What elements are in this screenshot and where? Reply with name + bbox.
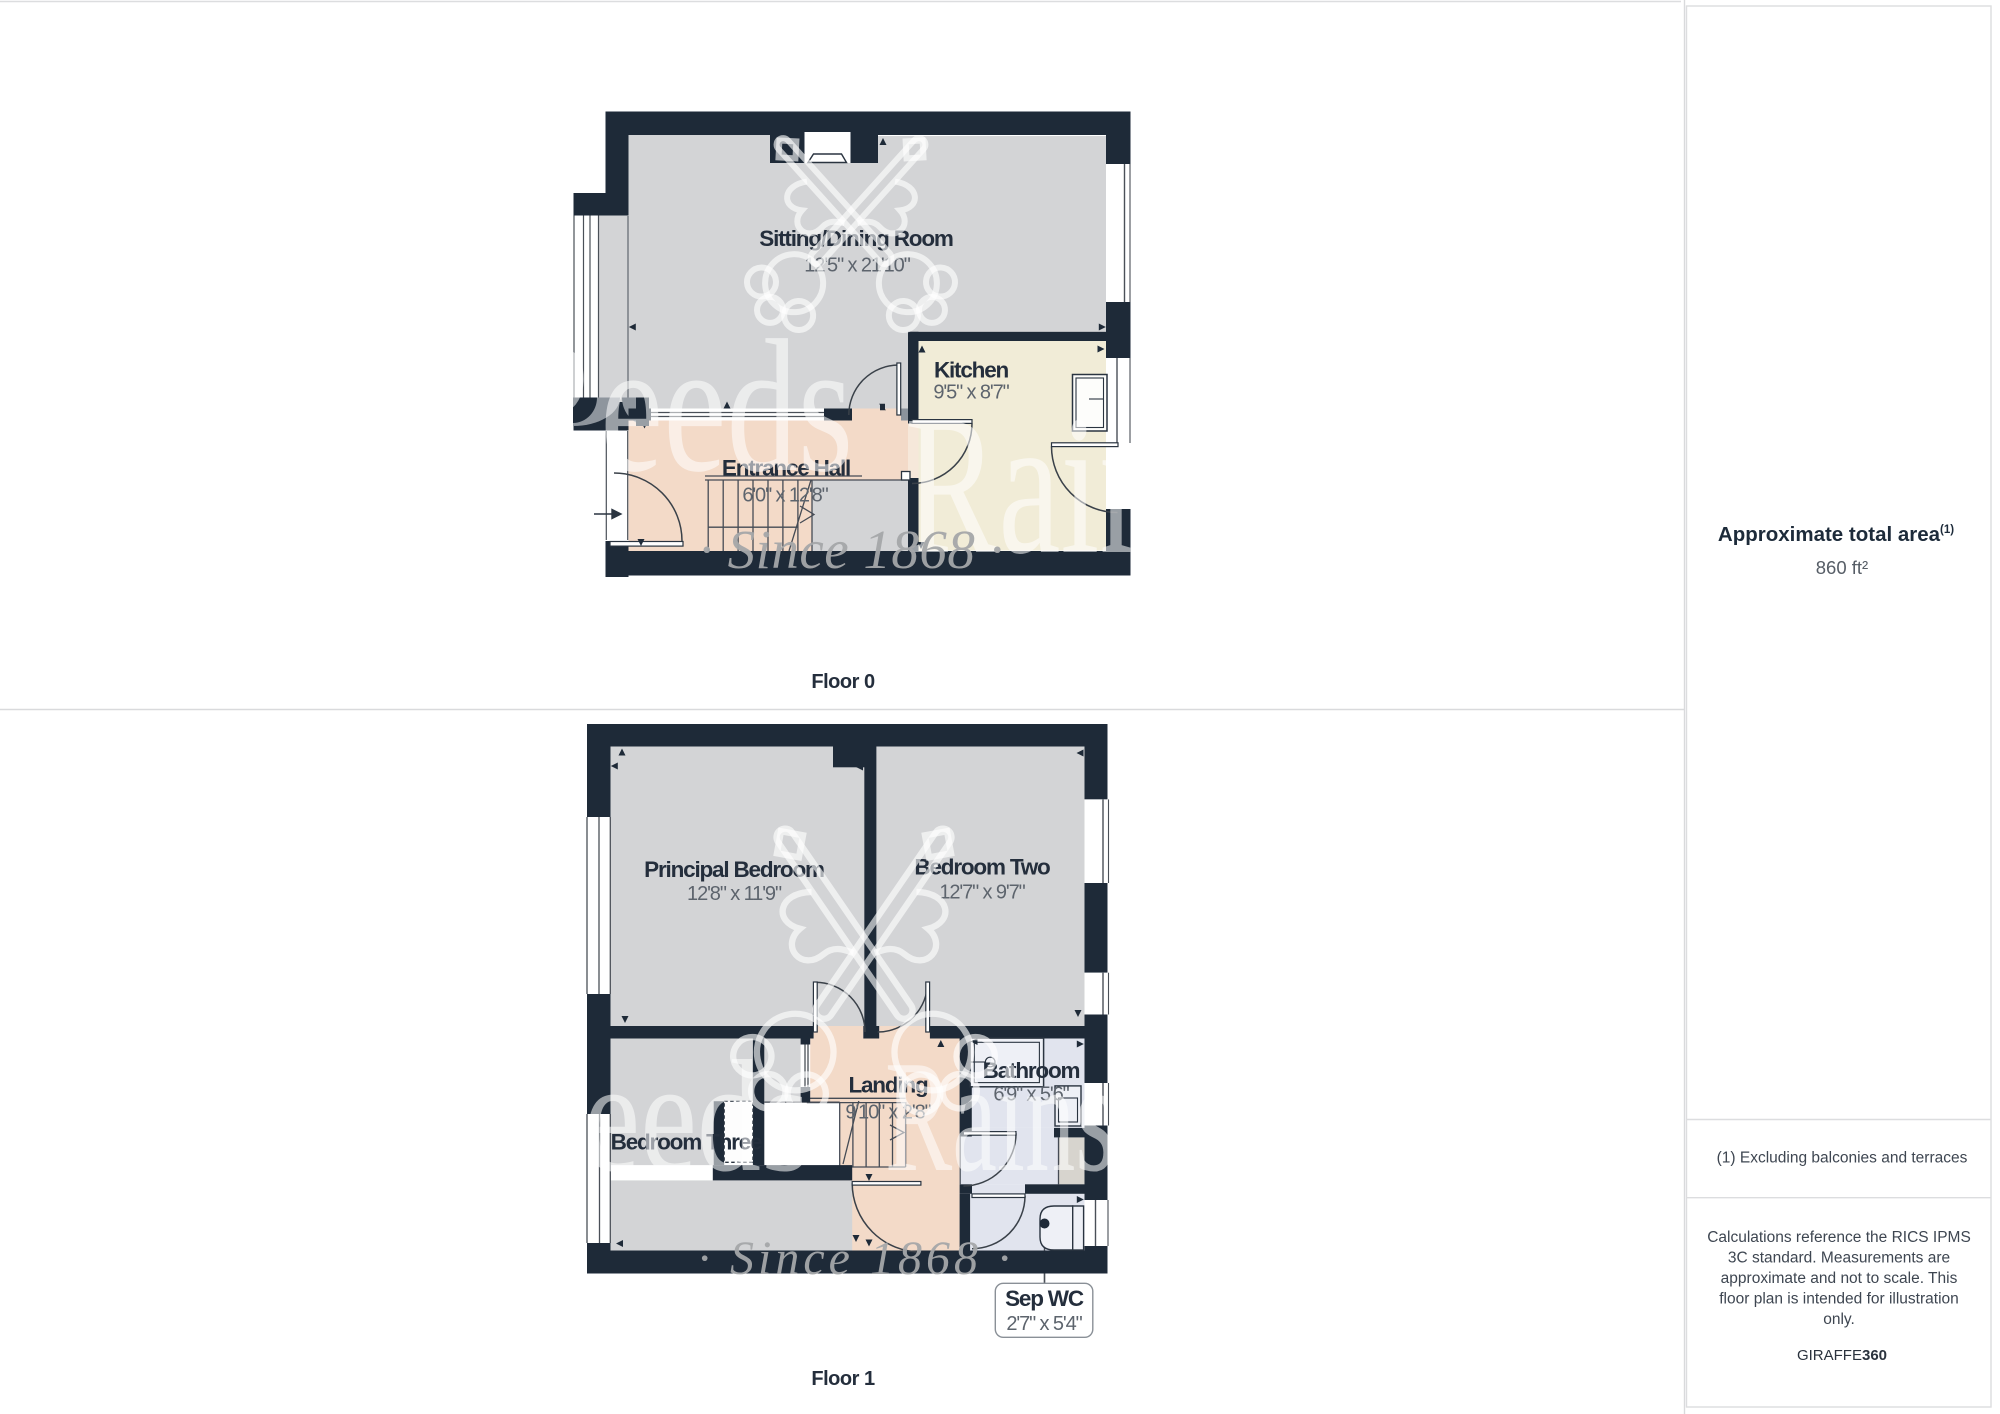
svg-text:Reeds: Reeds <box>498 1029 811 1206</box>
svg-text:12'7" x 9'7": 12'7" x 9'7" <box>939 882 1025 904</box>
svg-text:floor plan is intended for ill: floor plan is intended for illustration <box>1719 1291 1959 1308</box>
svg-text:3C standard. Measurements are: 3C standard. Measurements are <box>1728 1250 1950 1267</box>
svg-text:Sep WC: Sep WC <box>1005 1286 1084 1311</box>
svg-text:Reeds: Reeds <box>505 301 853 511</box>
svg-text:860 ft²: 860 ft² <box>1816 557 1868 578</box>
svg-text:Floor 1: Floor 1 <box>811 1368 875 1390</box>
svg-text:approximate and not to scale.: approximate and not to scale. This <box>1721 1270 1958 1287</box>
svg-text:(1) Excluding balconies and te: (1) Excluding balconies and terraces <box>1717 1150 1968 1167</box>
svg-text:Calculations reference the RIC: Calculations reference the RICS IPMS <box>1707 1229 1971 1246</box>
svg-text:Floor 0: Floor 0 <box>811 671 875 693</box>
svg-text:2'7" x 5'4": 2'7" x 5'4" <box>1006 1313 1082 1335</box>
svg-text:GIRAFFE360: GIRAFFE360 <box>1797 1347 1887 1364</box>
svg-text:· Since 1868 ·: · Since 1868 · <box>699 519 1004 580</box>
svg-text:Rains: Rains <box>885 1028 1115 1205</box>
svg-text:12'8" x 11'9": 12'8" x 11'9" <box>687 883 782 905</box>
svg-text:· Since 1868 ·: · Since 1868 · <box>698 1232 1014 1285</box>
svg-text:Approximate total area(1): Approximate total area(1) <box>1718 523 1954 546</box>
svg-text:only.: only. <box>1823 1311 1855 1328</box>
